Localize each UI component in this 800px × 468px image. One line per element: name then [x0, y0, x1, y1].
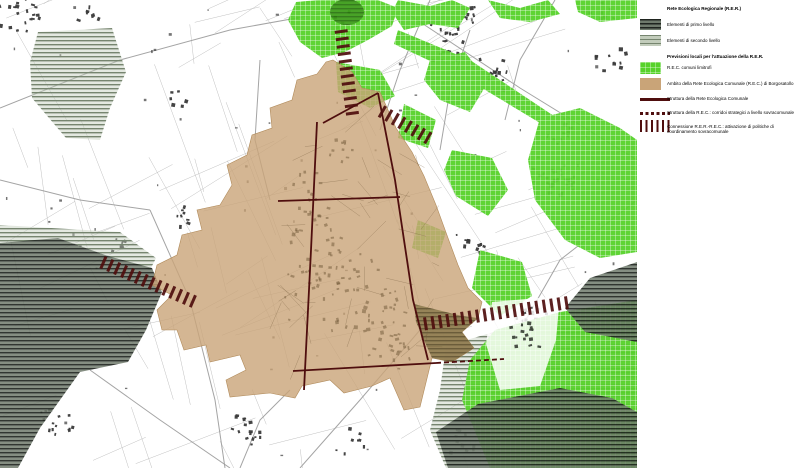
legend-item-label: Elementi di secondo livello: [667, 38, 795, 43]
legend-item-label: R.E.C. comuni limitrofi: [667, 65, 795, 70]
legend-section-header: Rete Ecologica Regionale (R.E.R.): [667, 6, 741, 11]
map-canvas: [0, 0, 637, 468]
legend-item-label: Elementi di primo livello: [667, 22, 795, 27]
legend-symbol-struttura-line: [640, 98, 670, 101]
legend-item-label: Ambito della Rete Ecologica Comunale (R.…: [667, 81, 795, 86]
legend-item-label: Struttura della Rete Ecologica Comunale: [667, 96, 795, 101]
ecological-network-map: [0, 0, 637, 468]
legend-item-label: Struttura della R.E.C.: corridoi strateg…: [667, 110, 795, 115]
map-document: Rete Ecologica Regionale (R.E.R.)Element…: [0, 0, 800, 468]
legend-panel: Rete Ecologica Regionale (R.E.R.)Element…: [637, 0, 800, 468]
legend-symbol-corridoio-dashed-line: [640, 112, 670, 115]
legend-section-header: Previsioni locali per l'attuazione della…: [667, 54, 763, 59]
legend-swatch-rec-comuni-limitrofi: [640, 62, 661, 74]
legend-item-label: Connessione R.E.R.-R.E.C.: attivazione d…: [667, 124, 795, 134]
legend-swatch-ambito-rec: [640, 78, 661, 90]
legend-swatch-primo-livello: [640, 19, 661, 30]
legend-swatch-secondo-livello: [640, 35, 661, 46]
